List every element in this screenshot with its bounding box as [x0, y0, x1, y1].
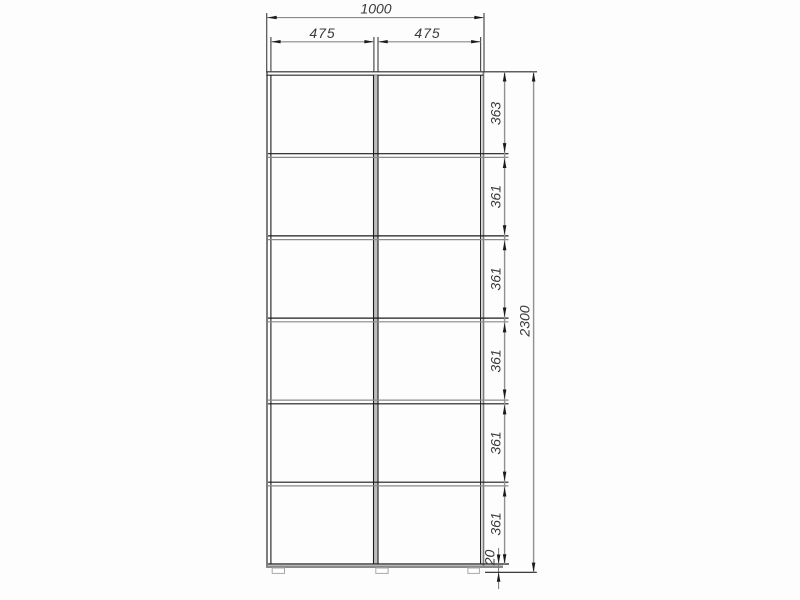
svg-text:363: 363 [487, 102, 503, 126]
svg-text:2300: 2300 [517, 305, 533, 337]
svg-text:361: 361 [487, 512, 503, 535]
svg-text:475: 475 [309, 25, 335, 41]
svg-text:475: 475 [414, 25, 440, 41]
svg-text:1000: 1000 [360, 0, 391, 16]
svg-text:361: 361 [487, 185, 503, 208]
svg-text:361: 361 [487, 267, 503, 290]
svg-text:20: 20 [482, 550, 498, 567]
svg-text:361: 361 [487, 431, 503, 454]
svg-text:361: 361 [487, 349, 503, 372]
